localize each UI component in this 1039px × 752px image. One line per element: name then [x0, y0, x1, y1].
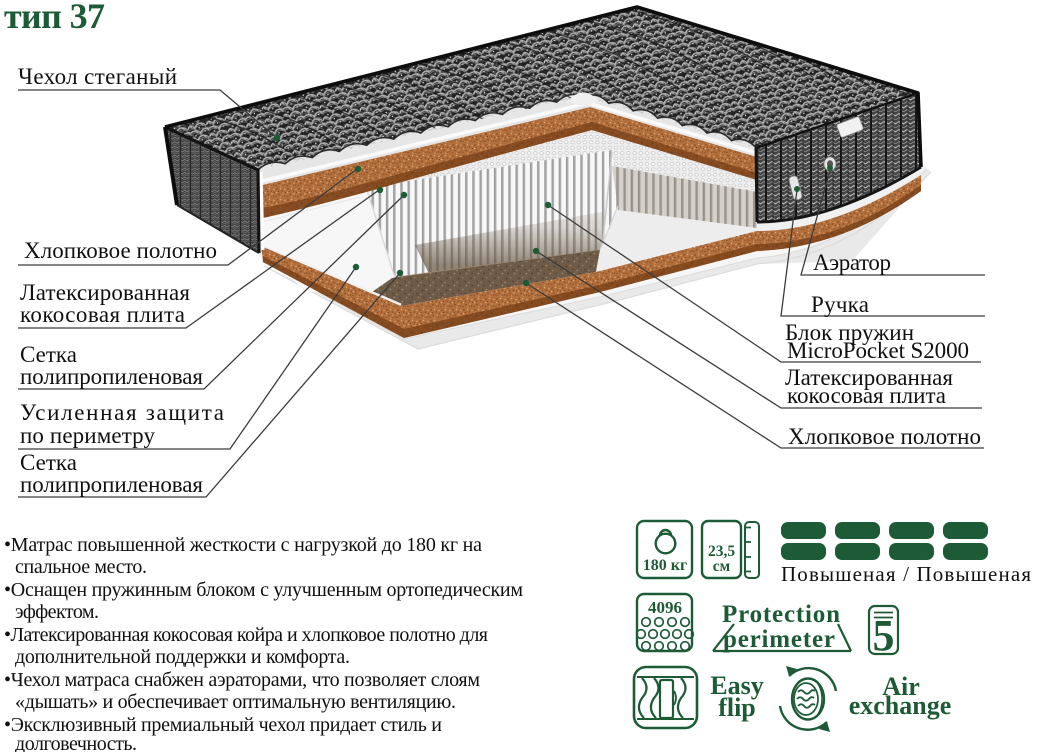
svg-text:5: 5 [873, 611, 895, 660]
svg-text:Повышеная / Повышеная: Повышеная / Повышеная [781, 562, 1031, 586]
svg-text:Аэратор: Аэратор [813, 250, 891, 275]
svg-text:по периметру: по периметру [20, 423, 156, 448]
svg-text:4096: 4096 [648, 598, 682, 617]
svg-text:спальное место.: спальное место. [15, 556, 147, 578]
svg-text:кокосовая плита: кокосовая плита [20, 302, 185, 327]
svg-text:долговечность.: долговечность. [15, 733, 137, 752]
svg-text:кокосовая плита: кокосовая плита [787, 383, 946, 408]
svg-text:эффектом.: эффектом. [15, 601, 99, 623]
svg-text:Protection: Protection [722, 601, 840, 628]
svg-text:MicroPocket S2000: MicroPocket S2000 [787, 338, 969, 363]
svg-text:Усиленная защита: Усиленная защита [20, 400, 224, 425]
svg-text:дополнительной поддержки и ком: дополнительной поддержки и комфорта. [15, 646, 350, 668]
svg-text:полипропиленовая: полипропиленовая [20, 364, 203, 389]
svg-text:тип 37: тип 37 [4, 0, 105, 36]
svg-text:см: см [713, 558, 731, 575]
svg-text:Чехол стеганый: Чехол стеганый [18, 64, 177, 89]
svg-text:Хлопковое полотно: Хлопковое полотно [788, 424, 981, 449]
svg-text:Ручка: Ручка [811, 292, 869, 317]
svg-text:полипропиленовая: полипропиленовая [20, 472, 203, 497]
svg-text:Хлопковое полотно: Хлопковое полотно [24, 238, 217, 263]
svg-text:•Чехол матраса снабжен аэратор: •Чехол матраса снабжен аэраторами, что п… [4, 669, 480, 691]
svg-text:flip: flip [718, 693, 756, 722]
svg-text:exchange: exchange [849, 691, 952, 720]
svg-text:perimeter: perimeter [723, 626, 835, 653]
svg-text:•Матрас повышенной жесткости с: •Матрас повышенной жесткости с нагрузкой… [4, 534, 482, 556]
svg-text:180 кг: 180 кг [643, 557, 687, 574]
svg-text:•Оснащен пружинным блоком с ул: •Оснащен пружинным блоком с улучшенным о… [4, 579, 523, 601]
svg-text:«дышать» и обеспечивает оптима: «дышать» и обеспечивает оптимальную вент… [15, 691, 456, 713]
svg-text:•Латексированная кокосовая кой: •Латексированная кокосовая койра и хлопк… [4, 624, 488, 646]
